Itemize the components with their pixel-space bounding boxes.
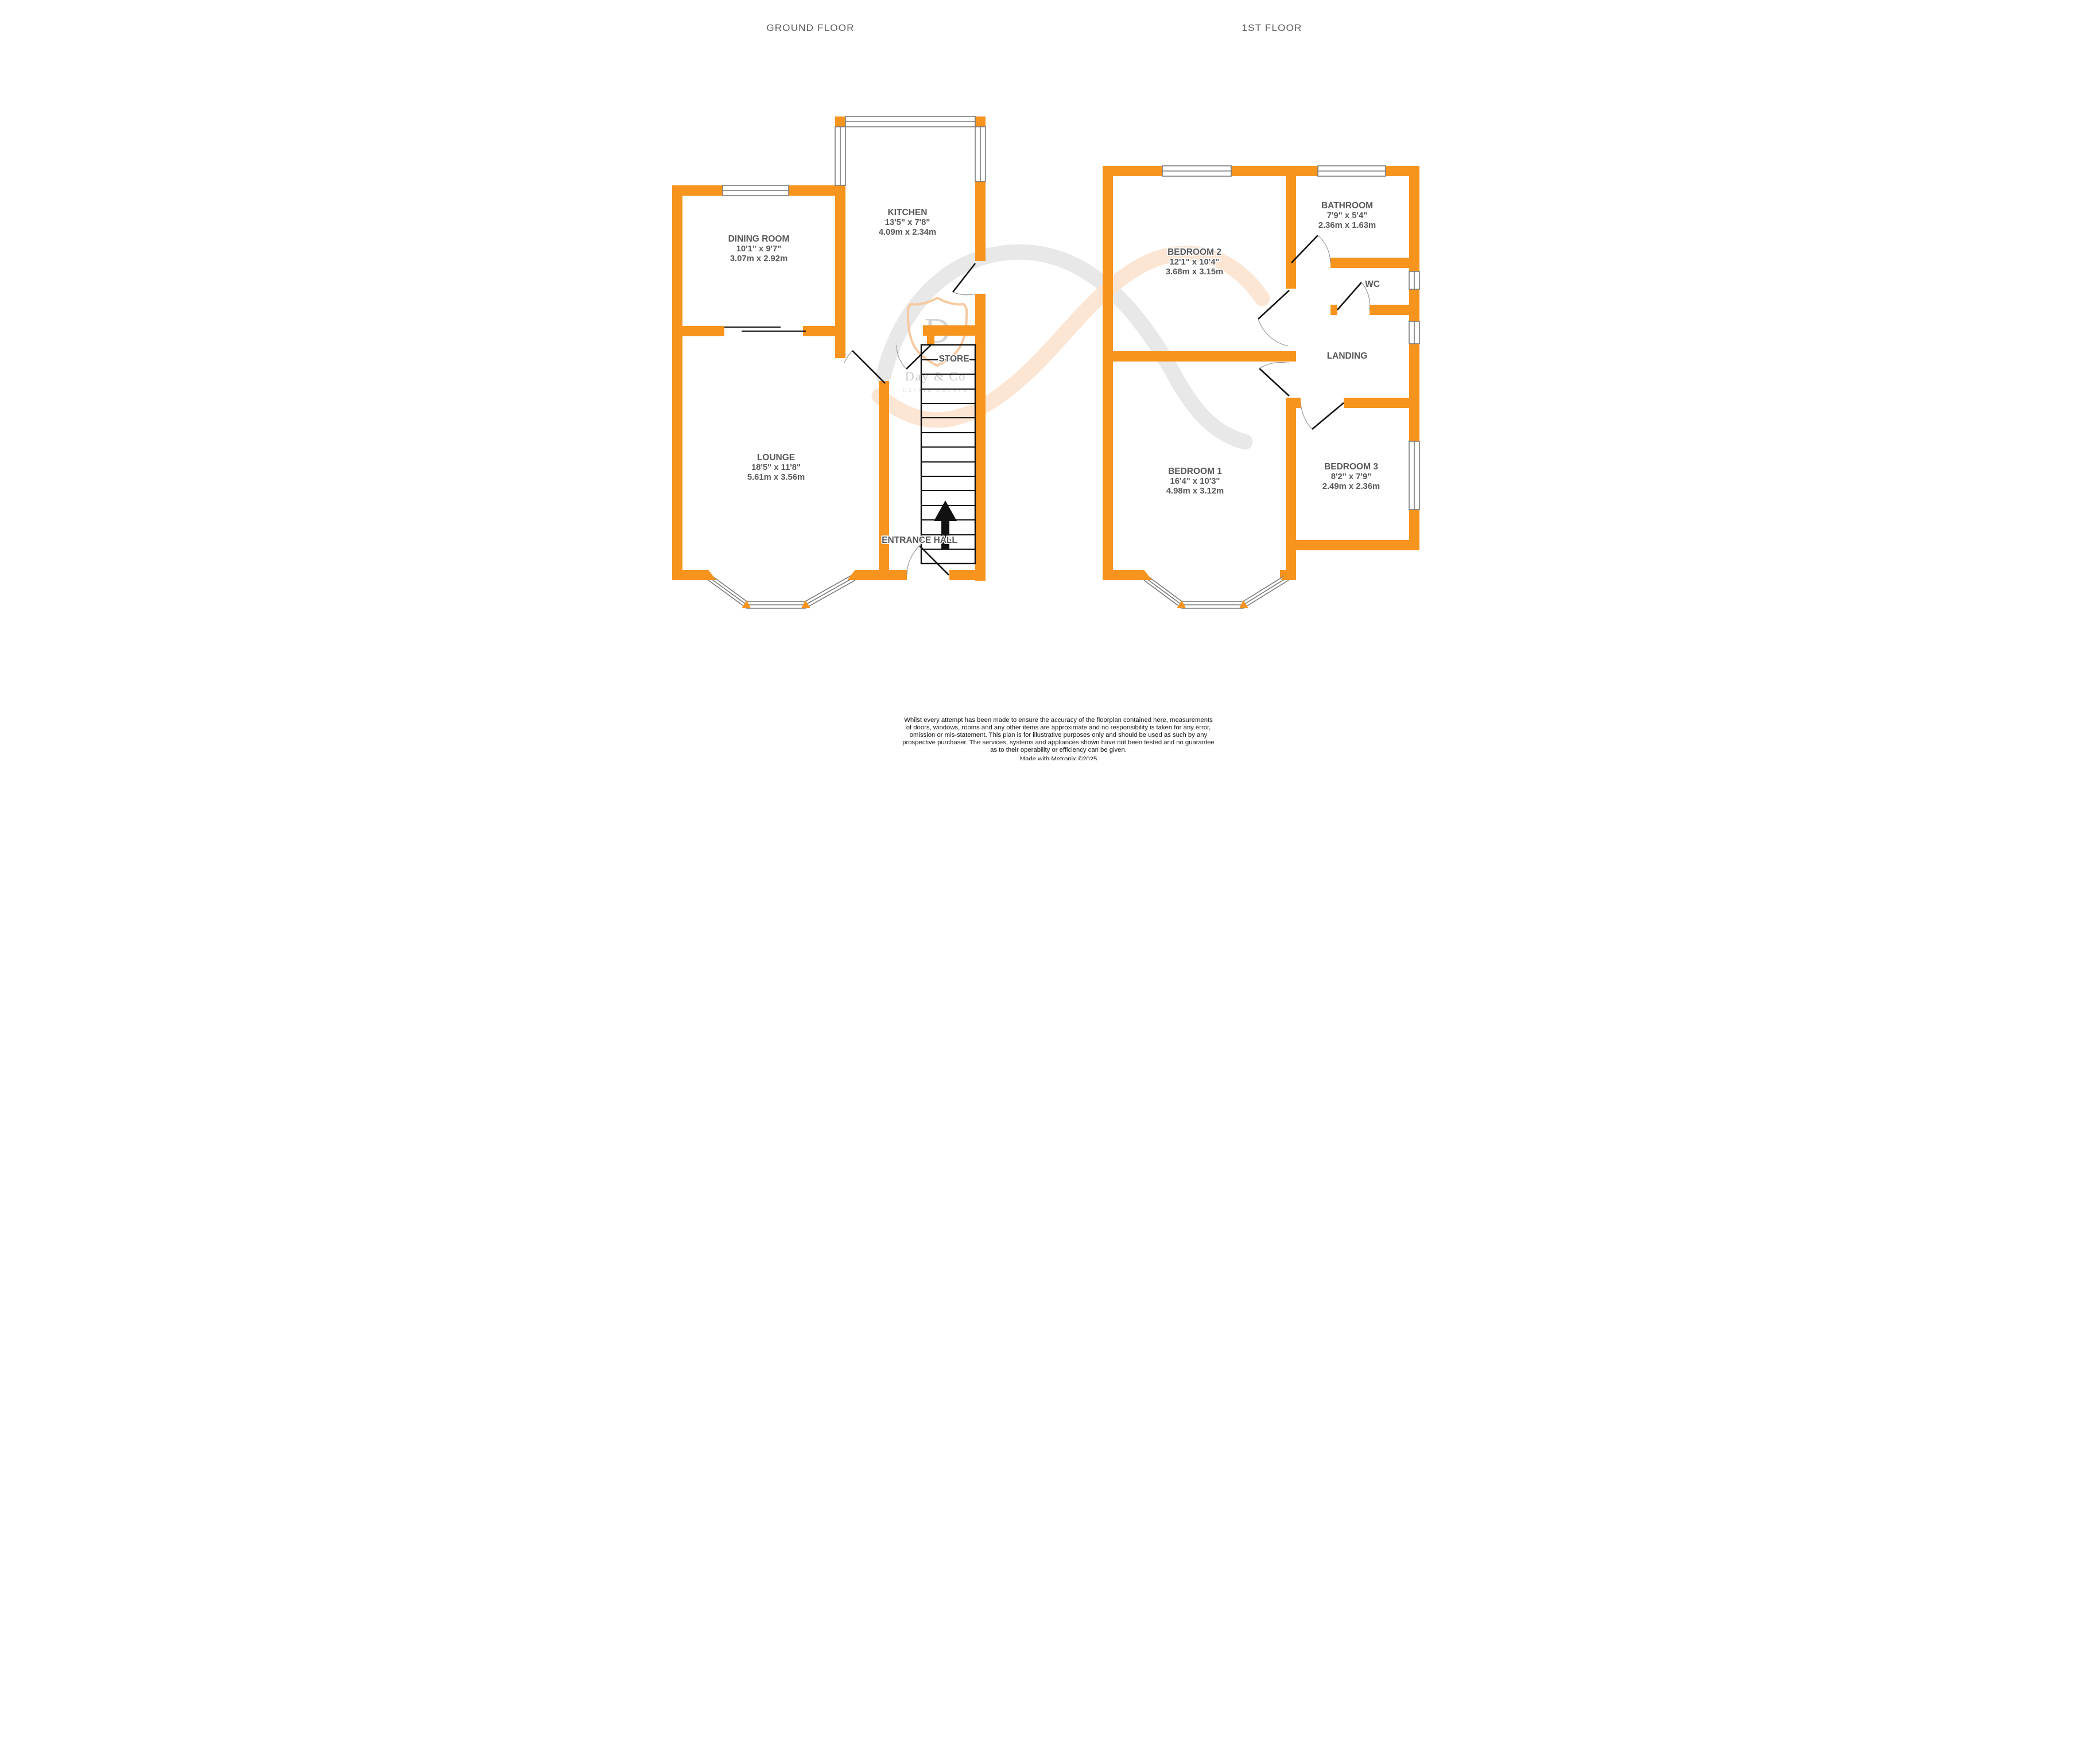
wall [835, 116, 845, 127]
disclaimer: Whilst every attempt has been made to en… [902, 717, 1215, 760]
dining-lounge-opening [724, 327, 806, 331]
wall [1286, 398, 1296, 580]
bathroom-door [1291, 235, 1330, 263]
up-arrow-icon [934, 500, 957, 521]
bedroom1-door [1259, 362, 1289, 396]
kitchen-right-window [975, 127, 986, 181]
lounge-label: LOUNGE [757, 453, 795, 463]
bedroom1-bay-window [1144, 570, 1289, 608]
lounge-bay-window [708, 570, 855, 608]
disclaimer-line: Whilst every attempt has been made to en… [904, 717, 1213, 724]
wall [1286, 176, 1296, 289]
bathroom-window [1318, 166, 1386, 176]
lounge-imperial: 18'5" x 11'8" [751, 463, 801, 472]
wall [835, 196, 845, 336]
wall [975, 294, 986, 581]
wall [975, 181, 986, 261]
wall [1286, 540, 1419, 550]
bathroom-imperial: 7'9" x 5'4" [1327, 211, 1367, 220]
floorplan-page: D Day & Co ESTATE AGENTS GROUND FLOOR 1S… [593, 0, 1494, 760]
wall [803, 326, 845, 336]
entrance-door [907, 546, 949, 575]
bedroom3-window [1409, 441, 1419, 510]
wall [835, 185, 845, 196]
bathroom-metric: 2.36m x 1.63m [1318, 221, 1376, 230]
bedroom2-label: BEDROOM 2 [1167, 247, 1221, 257]
landing-window [1409, 321, 1419, 344]
bedroom3-metric: 2.49m x 2.36m [1322, 482, 1380, 491]
kitchen-label: KITCHEN [888, 208, 928, 217]
wc-window [1409, 271, 1419, 289]
wall [927, 336, 934, 345]
landing-label: LANDING [1327, 351, 1368, 361]
ground-floor-plan: DINING ROOM 10'1" x 9'7" 3.07m x 2.92m K… [672, 116, 986, 608]
ground-windows [723, 116, 986, 196]
wall [1344, 398, 1419, 408]
lounge-metric: 5.61m x 3.56m [747, 473, 805, 482]
bedroom2-metric: 3.68m x 3.15m [1166, 267, 1223, 277]
entrance-hall-label: ENTRANCE HALL [882, 535, 957, 545]
wall [949, 570, 986, 580]
wall [975, 116, 986, 127]
wall [672, 185, 682, 580]
disclaimer-line: of doors, windows, rooms and any other i… [906, 724, 1211, 731]
dining-window [723, 185, 789, 196]
wall [855, 570, 907, 580]
first-floor-plan: BEDROOM 2 12'1" x 10'4" 3.68m x 3.15m BA… [1103, 166, 1419, 608]
watermark: D Day & Co ESTATE AGENTS [879, 252, 1262, 442]
bedroom3-label: BEDROOM 3 [1324, 462, 1378, 472]
bedroom2-imperial: 12'1" x 10'4" [1170, 258, 1220, 267]
bedroom1-imperial: 16'4" x 10'3" [1170, 477, 1220, 486]
wall [1113, 351, 1296, 362]
wall [672, 326, 724, 336]
metropix-credit: Made with Metropix ©2025 [1020, 756, 1097, 760]
wc-label: WC [1365, 279, 1380, 289]
disclaimer-line: as to their operability or efficiency ca… [990, 747, 1127, 753]
wall [1103, 166, 1113, 580]
dining-room-label: DINING ROOM [728, 234, 790, 244]
wall [1103, 570, 1144, 580]
wall [1330, 305, 1337, 315]
wall [879, 381, 889, 580]
dining-room-imperial: 10'1" x 9'7" [736, 244, 782, 254]
watermark-tagline: ESTATE AGENTS [903, 387, 968, 393]
disclaimer-line: prospective purchaser. The services, sys… [902, 739, 1215, 746]
bathroom-label: BATHROOM [1321, 201, 1373, 211]
bedroom3-imperial: 8'2" x 7'9" [1331, 472, 1371, 481]
watermark-name: Day & Co [905, 369, 966, 383]
wall [672, 570, 708, 580]
store-label: STORE [938, 354, 969, 364]
kitchen-metric: 4.09m x 2.34m [879, 228, 936, 237]
wall [835, 336, 845, 358]
bedroom1-label: BEDROOM 1 [1168, 467, 1222, 476]
floorplan-canvas: D Day & Co ESTATE AGENTS GROUND FLOOR 1S… [593, 0, 1494, 760]
kitchen-imperial: 13'5" x 7'8" [885, 218, 930, 227]
bedroom2-window [1162, 166, 1231, 176]
wall [1286, 398, 1301, 408]
wall [1370, 305, 1419, 315]
bedroom1-metric: 4.98m x 3.12m [1166, 487, 1224, 496]
kitchen-left-window [835, 127, 845, 185]
dining-room-metric: 3.07m x 2.92m [730, 254, 788, 263]
ground-floor-title: GROUND FLOOR [766, 22, 854, 33]
bedroom3-door [1301, 403, 1344, 429]
first-labels: BEDROOM 2 12'1" x 10'4" 3.68m x 3.15m BA… [1166, 201, 1380, 496]
kitchen-top-window [845, 116, 975, 127]
disclaimer-line: omission or mis-statement. This plan is … [910, 732, 1208, 739]
wall [1330, 258, 1409, 268]
first-floor-title: 1ST FLOOR [1242, 22, 1302, 33]
